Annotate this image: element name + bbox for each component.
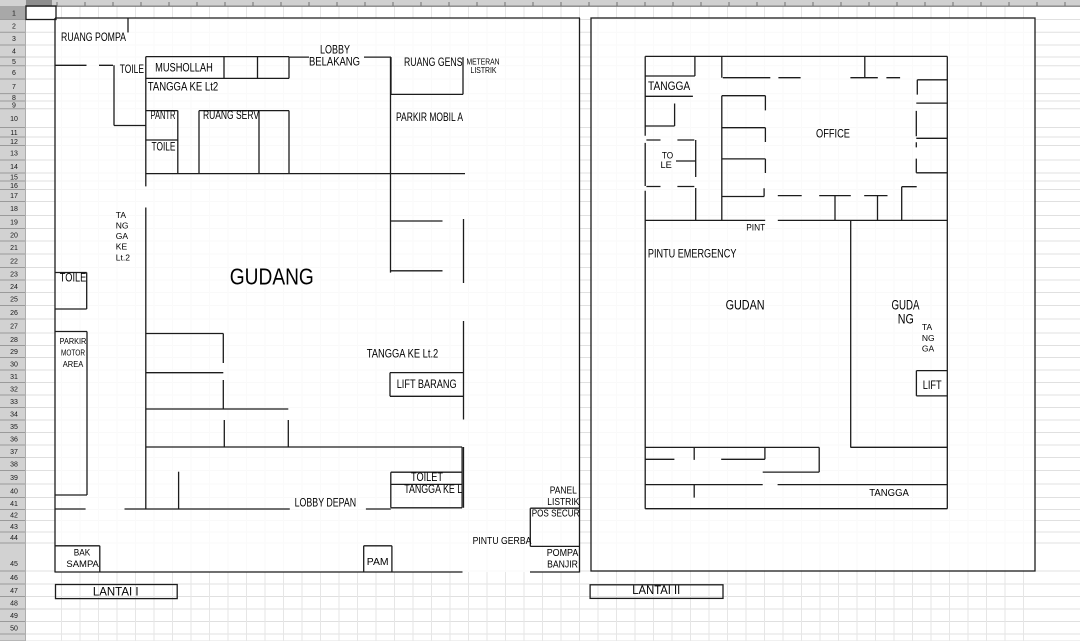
svg-text:2: 2 [12, 24, 16, 31]
svg-text:16: 16 [10, 183, 18, 190]
svg-text:Lt.2: Lt.2 [116, 252, 130, 262]
svg-text:PAM: PAM [367, 557, 389, 568]
svg-text:6: 6 [12, 70, 16, 77]
svg-text:12: 12 [10, 139, 18, 146]
svg-text:PINT: PINT [746, 223, 765, 233]
svg-text:LIFT: LIFT [923, 380, 942, 392]
svg-text:TANGGA: TANGGA [648, 81, 690, 93]
svg-text:40: 40 [10, 488, 18, 495]
svg-text:32: 32 [10, 386, 18, 393]
svg-text:50: 50 [10, 625, 18, 632]
svg-text:4: 4 [12, 49, 16, 56]
svg-text:37: 37 [10, 449, 18, 456]
svg-text:TOILE: TOILE [120, 64, 144, 76]
svg-text:SAMPA: SAMPA [66, 559, 99, 569]
svg-text:30: 30 [10, 361, 18, 368]
svg-text:28: 28 [10, 337, 18, 344]
svg-text:5: 5 [12, 59, 16, 66]
svg-text:9: 9 [12, 103, 16, 110]
svg-text:GUDA: GUDA [892, 298, 920, 313]
svg-text:45: 45 [10, 561, 18, 568]
svg-text:24: 24 [10, 284, 18, 291]
svg-text:GUDANG: GUDANG [230, 264, 314, 290]
svg-text:OFFICE: OFFICE [816, 129, 850, 141]
svg-text:31: 31 [10, 374, 18, 381]
svg-text:15: 15 [10, 175, 18, 182]
svg-text:33: 33 [10, 399, 18, 406]
svg-text:47: 47 [10, 588, 18, 595]
svg-text:LISTRIK: LISTRIK [471, 65, 497, 75]
svg-text:TA: TA [922, 322, 933, 332]
svg-text:LOBBY: LOBBY [320, 44, 350, 56]
svg-text:AREA: AREA [63, 359, 84, 369]
svg-text:25: 25 [10, 297, 18, 304]
svg-text:TO: TO [662, 150, 673, 160]
svg-text:NG: NG [922, 333, 935, 343]
svg-text:MUSHOLLAH: MUSHOLLAH [155, 62, 213, 74]
svg-text:LANTAI I: LANTAI I [93, 587, 139, 599]
svg-text:TANGGA KE L: TANGGA KE L [404, 484, 462, 496]
svg-text:KE: KE [116, 242, 128, 252]
svg-text:GA: GA [922, 344, 935, 354]
svg-text:23: 23 [10, 271, 18, 278]
svg-text:BANJIR: BANJIR [547, 559, 578, 570]
svg-text:PINTU EMERGENCY: PINTU EMERGENCY [648, 249, 737, 261]
svg-text:10: 10 [10, 116, 18, 123]
svg-text:29: 29 [10, 349, 18, 356]
svg-text:35: 35 [10, 424, 18, 431]
svg-text:13: 13 [10, 150, 18, 157]
svg-text:LIFT BARANG: LIFT BARANG [397, 379, 457, 391]
svg-text:27: 27 [10, 324, 18, 331]
svg-text:TA: TA [116, 210, 127, 220]
svg-text:38: 38 [10, 462, 18, 469]
svg-text:POS SECUR: POS SECUR [532, 509, 580, 520]
svg-text:19: 19 [10, 220, 18, 227]
svg-text:BAK: BAK [74, 547, 91, 557]
svg-text:BELAKANG: BELAKANG [309, 56, 360, 68]
svg-text:RUANG GENS: RUANG GENS [404, 57, 463, 69]
svg-text:8: 8 [12, 95, 16, 102]
svg-text:GA: GA [116, 231, 129, 241]
svg-text:PARKIR MOBIL A: PARKIR MOBIL A [396, 112, 463, 124]
svg-text:43: 43 [10, 524, 18, 531]
svg-text:22: 22 [10, 258, 18, 265]
svg-text:LE: LE [661, 160, 672, 170]
svg-text:41: 41 [10, 501, 18, 508]
svg-text:39: 39 [10, 475, 18, 482]
svg-text:PANTR: PANTR [151, 110, 176, 122]
svg-text:TANGGA KE Lt2: TANGGA KE Lt2 [148, 81, 219, 93]
svg-text:46: 46 [10, 575, 18, 582]
svg-text:RUANG POMPA: RUANG POMPA [61, 32, 126, 44]
svg-text:NG: NG [898, 312, 914, 327]
svg-text:21: 21 [10, 245, 18, 252]
svg-text:RUANG SERV: RUANG SERV [203, 110, 259, 122]
svg-text:PARKIR: PARKIR [60, 336, 87, 346]
svg-text:17: 17 [10, 193, 18, 200]
svg-text:11: 11 [10, 130, 17, 137]
svg-text:TOILET: TOILET [411, 472, 443, 484]
svg-text:7: 7 [12, 84, 16, 91]
svg-text:42: 42 [10, 513, 18, 520]
svg-text:PANEL: PANEL [550, 486, 578, 497]
svg-text:26: 26 [10, 310, 18, 317]
svg-text:3: 3 [12, 36, 16, 43]
svg-text:LOBBY DEPAN: LOBBY DEPAN [295, 498, 357, 510]
svg-text:36: 36 [10, 436, 18, 443]
svg-text:MOTOR: MOTOR [61, 348, 85, 358]
svg-text:TOILE: TOILE [152, 141, 176, 153]
svg-text:POMPA: POMPA [547, 548, 579, 559]
svg-text:LANTAI II: LANTAI II [632, 585, 680, 597]
svg-text:18: 18 [10, 206, 18, 213]
svg-text:NG: NG [116, 221, 129, 231]
svg-text:PINTU GERBA: PINTU GERBA [473, 536, 532, 547]
svg-text:TANGGA: TANGGA [869, 488, 909, 499]
svg-text:GUDAN: GUDAN [726, 298, 765, 313]
svg-text:44: 44 [10, 535, 18, 542]
svg-text:49: 49 [10, 613, 18, 620]
svg-text:LISTRIK: LISTRIK [547, 497, 579, 508]
svg-text:14: 14 [10, 164, 18, 171]
svg-text:34: 34 [10, 411, 18, 418]
svg-text:20: 20 [10, 232, 18, 239]
svg-text:TOILE: TOILE [60, 272, 87, 284]
svg-text:48: 48 [10, 600, 18, 607]
svg-text:TANGGA KE Lt.2: TANGGA KE Lt.2 [367, 349, 439, 361]
svg-text:1: 1 [12, 10, 16, 17]
